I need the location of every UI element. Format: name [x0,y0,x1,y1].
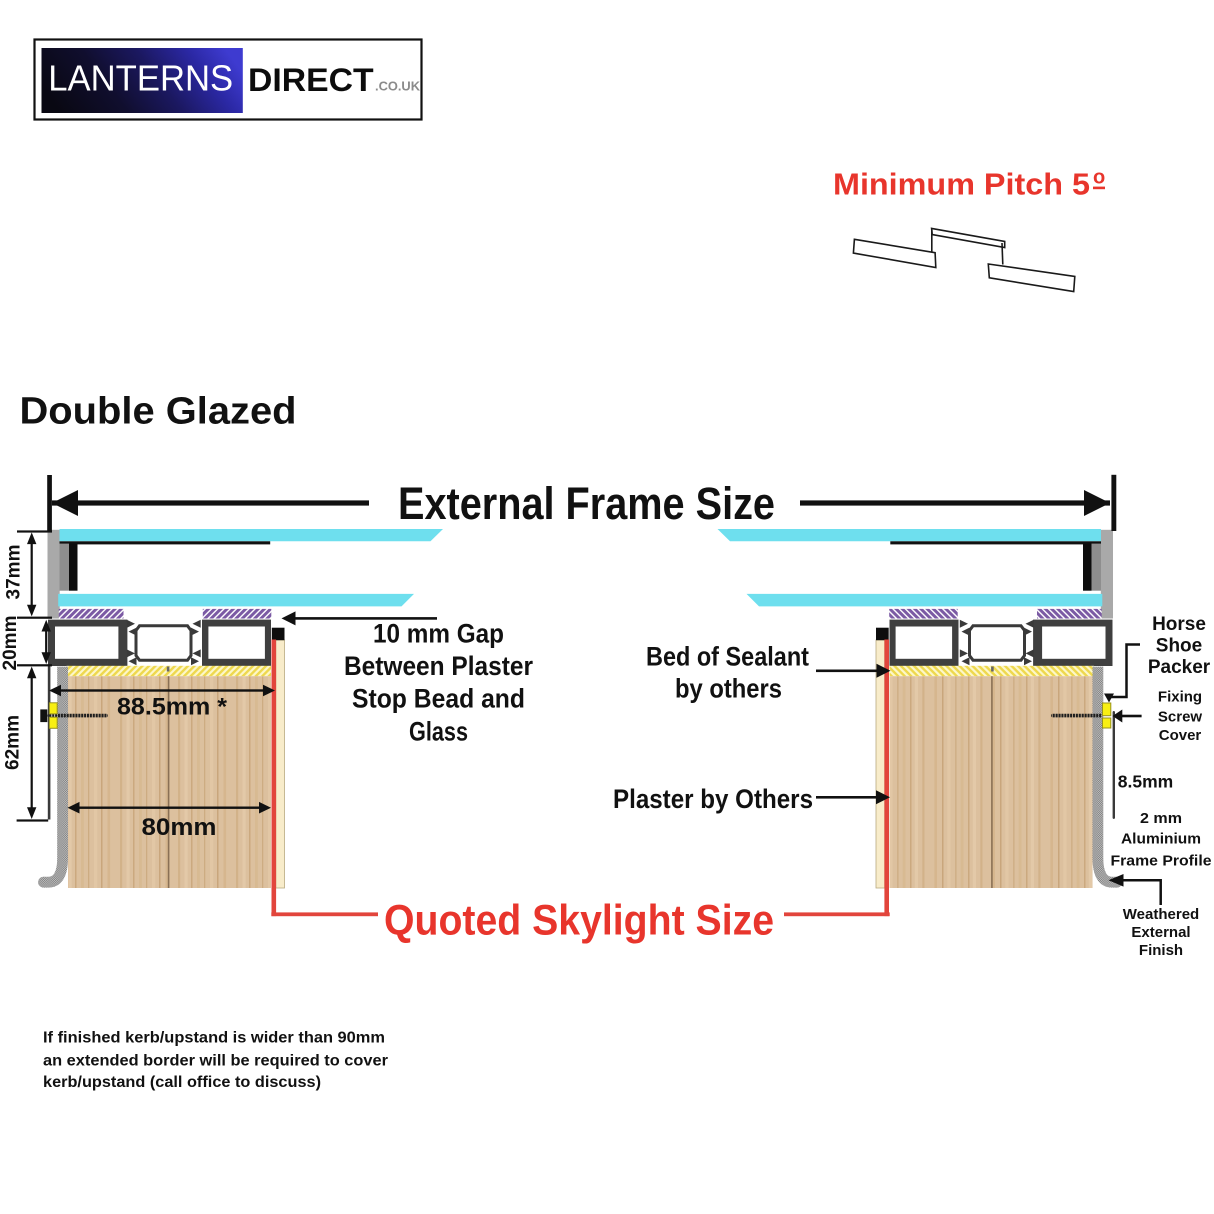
svg-text:Screw: Screw [1158,709,1203,726]
svg-text:10 mm Gap: 10 mm Gap [373,618,504,648]
svg-text:DIRECT: DIRECT [248,62,374,98]
svg-text:an extended border will be req: an extended border will be required to c… [43,1052,388,1069]
svg-text:8.5mm: 8.5mm [1118,771,1173,791]
svg-text:20mm: 20mm [0,616,21,671]
svg-text:Plaster by Others: Plaster by Others [613,784,813,814]
svg-text:Between Plaster: Between Plaster [344,651,533,681]
svg-text:Quoted Skylight Size: Quoted Skylight Size [384,896,774,944]
svg-text:37mm: 37mm [4,545,25,600]
svg-text:2 mm: 2 mm [1140,810,1182,827]
svg-text:External Frame Size: External Frame Size [398,478,775,529]
svg-text:Horse: Horse [1152,614,1206,635]
svg-text:Weathered: Weathered [1123,906,1199,923]
svg-text:Finish: Finish [1139,942,1183,959]
svg-text:Glass: Glass [409,716,468,746]
svg-text:Frame Profile: Frame Profile [1111,853,1212,870]
svg-text:Packer: Packer [1148,657,1211,678]
svg-text:o: o [1093,167,1105,189]
svg-text:LANTERNS: LANTERNS [48,57,233,98]
svg-text:88.5mm *: 88.5mm * [117,694,228,721]
svg-text:Shoe: Shoe [1156,636,1202,657]
svg-text:Bed of Sealant: Bed of Sealant [646,642,809,672]
svg-text:Aluminium: Aluminium [1121,831,1201,848]
svg-text:Fixing: Fixing [1158,688,1202,705]
svg-text:If finished kerb/upstand is wi: If finished kerb/upstand is wider than 9… [43,1029,385,1046]
svg-text:Stop Bead and: Stop Bead and [352,684,525,714]
svg-text:kerb/upstand (call office to d: kerb/upstand (call office to discuss) [43,1074,321,1091]
svg-text:Cover: Cover [1159,727,1202,744]
svg-text:Minimum Pitch 5: Minimum Pitch 5 [833,168,1090,202]
svg-text:.CO.UK: .CO.UK [375,80,420,94]
svg-text:by others: by others [675,674,782,704]
svg-text:Double Glazed: Double Glazed [20,390,297,432]
svg-text:80mm: 80mm [142,814,217,841]
svg-text:62mm: 62mm [3,715,24,770]
svg-text:External: External [1131,924,1190,941]
